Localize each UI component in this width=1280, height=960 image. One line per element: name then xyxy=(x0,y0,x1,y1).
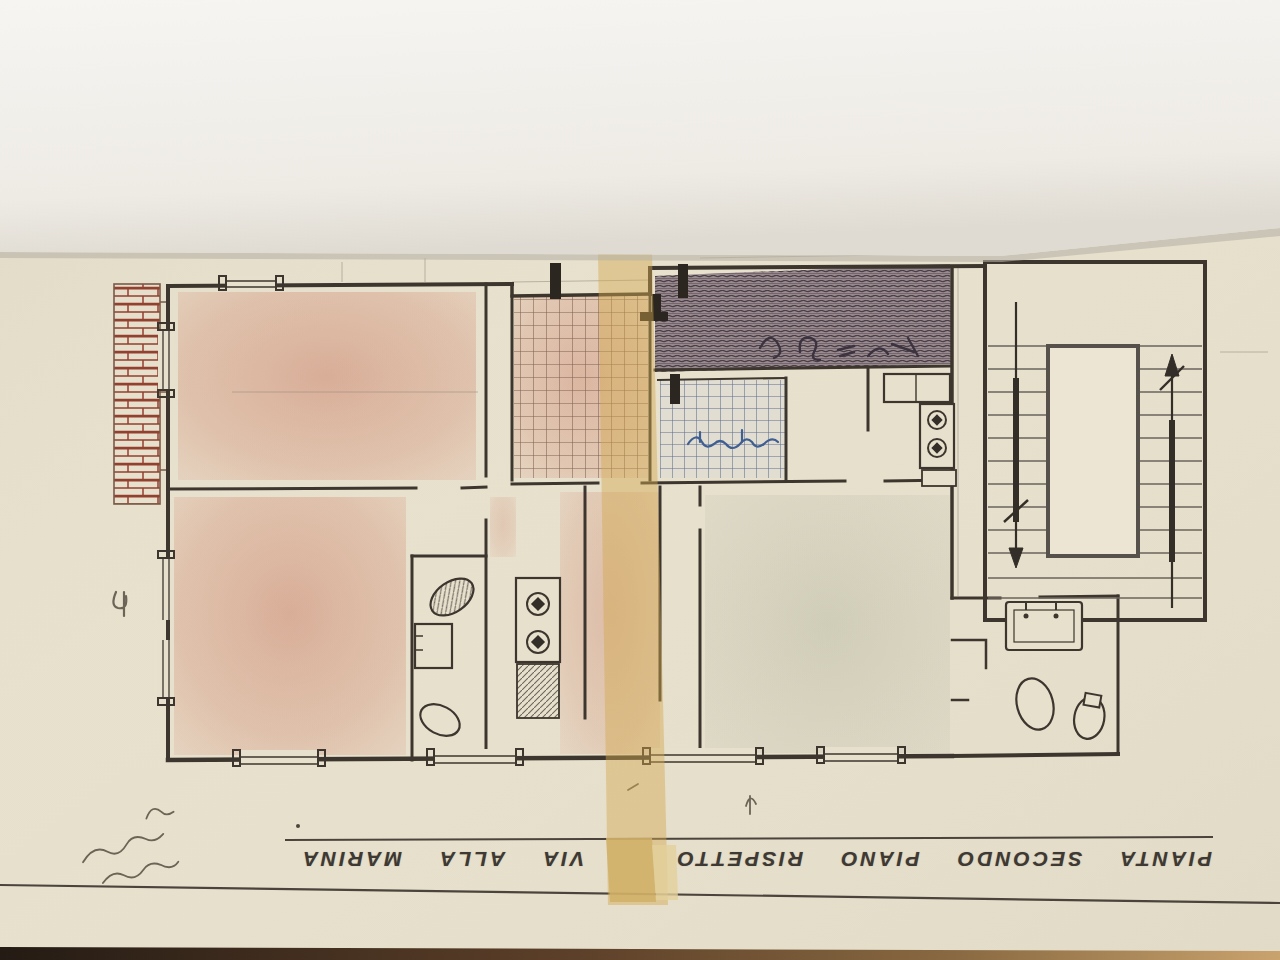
kitchen-fixtures-center xyxy=(516,578,560,718)
dark-hatched-balcony xyxy=(655,264,952,372)
plan-title-caption: PIANTA SECONDO PIANO RISPETTO VIA ALLA M… xyxy=(300,843,1212,875)
floor-plan-photo: PIANTA SECONDO PIANO RISPETTO VIA ALLA M… xyxy=(0,0,1280,960)
stair-void xyxy=(1048,346,1138,556)
floor-plan-drawing xyxy=(0,0,1280,960)
caption-word: SECONDO xyxy=(955,847,1082,871)
caption-word: PIANTA xyxy=(1117,847,1212,871)
caption-word: MARINA xyxy=(300,847,402,871)
brick-hatched-balcony xyxy=(114,284,168,504)
caption-word: PIANO xyxy=(838,847,920,871)
top-overlapping-sheet xyxy=(0,0,1280,262)
caption-word: RISPETTO xyxy=(675,847,804,871)
caption-word: VIA xyxy=(540,847,584,871)
caption-word: ALLA xyxy=(437,847,505,871)
